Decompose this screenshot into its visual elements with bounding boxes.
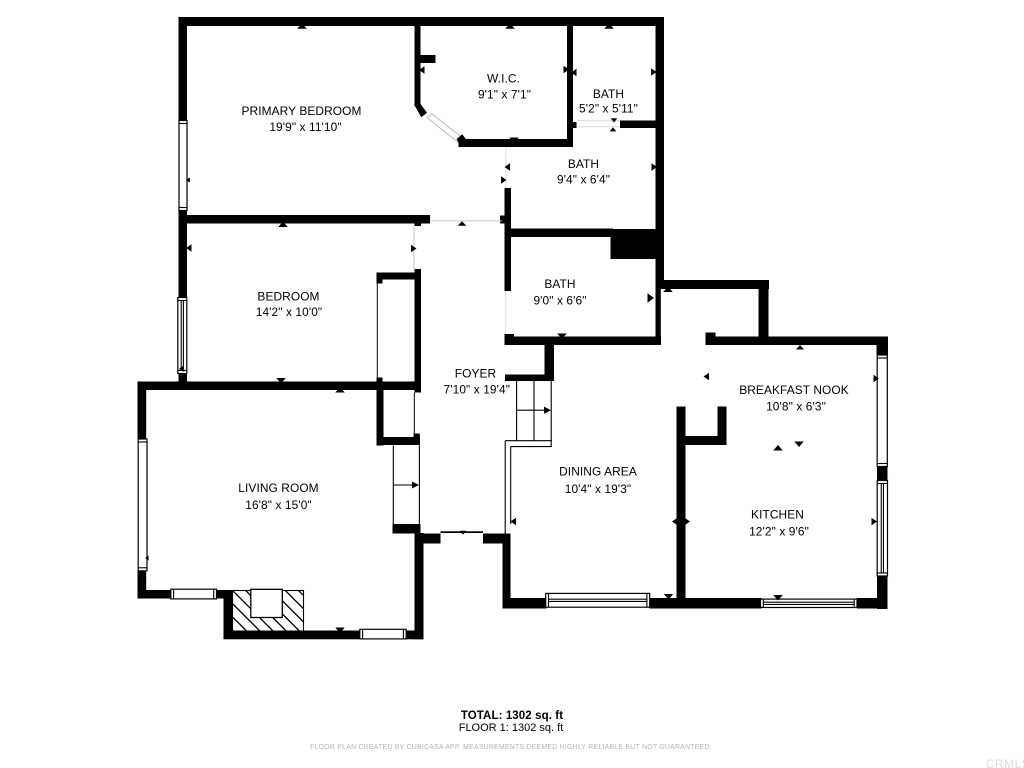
svg-text:BEDROOM: BEDROOM [257, 290, 319, 304]
svg-text:10'4" x 19'3": 10'4" x 19'3" [565, 482, 632, 496]
svg-text:9'0" x 6'6": 9'0" x 6'6" [533, 294, 586, 308]
svg-text:BATH: BATH [593, 87, 624, 101]
svg-text:FLOOR 1: 1302 sq. ft: FLOOR 1: 1302 sq. ft [459, 722, 564, 734]
svg-text:KITCHEN: KITCHEN [751, 508, 804, 522]
svg-text:LIVING ROOM: LIVING ROOM [238, 481, 318, 495]
svg-text:PRIMARY BEDROOM: PRIMARY BEDROOM [242, 104, 362, 118]
svg-text:TOTAL: 1302 sq. ft: TOTAL: 1302 sq. ft [461, 710, 563, 722]
svg-text:W.I.C.: W.I.C. [487, 72, 520, 86]
svg-text:5'2" x 5'11": 5'2" x 5'11" [579, 102, 638, 116]
svg-text:CRMLS: CRMLS [986, 757, 1024, 768]
svg-text:12'2" x 9'6": 12'2" x 9'6" [749, 525, 809, 539]
svg-text:19'9" x 11'10": 19'9" x 11'10" [269, 120, 341, 134]
svg-text:FOYER: FOYER [455, 367, 497, 381]
svg-text:14'2" x 10'0": 14'2" x 10'0" [256, 305, 323, 319]
svg-text:10'8" x 6'3": 10'8" x 6'3" [766, 400, 826, 414]
svg-text:FLOOR PLAN CREATED BY CUBICASA: FLOOR PLAN CREATED BY CUBICASA APP. MEAS… [310, 744, 712, 751]
svg-text:BATH: BATH [568, 157, 599, 171]
svg-text:DINING AREA: DINING AREA [559, 465, 637, 479]
svg-text:7'10" x 19'4": 7'10" x 19'4" [444, 383, 511, 397]
svg-text:BREAKFAST NOOK: BREAKFAST NOOK [739, 383, 849, 397]
svg-text:9'1" x 7'1": 9'1" x 7'1" [478, 88, 531, 102]
svg-text:9'4" x 6'4": 9'4" x 6'4" [557, 173, 610, 187]
svg-text:BATH: BATH [544, 277, 575, 291]
svg-text:16'8" x 15'0": 16'8" x 15'0" [245, 498, 312, 512]
